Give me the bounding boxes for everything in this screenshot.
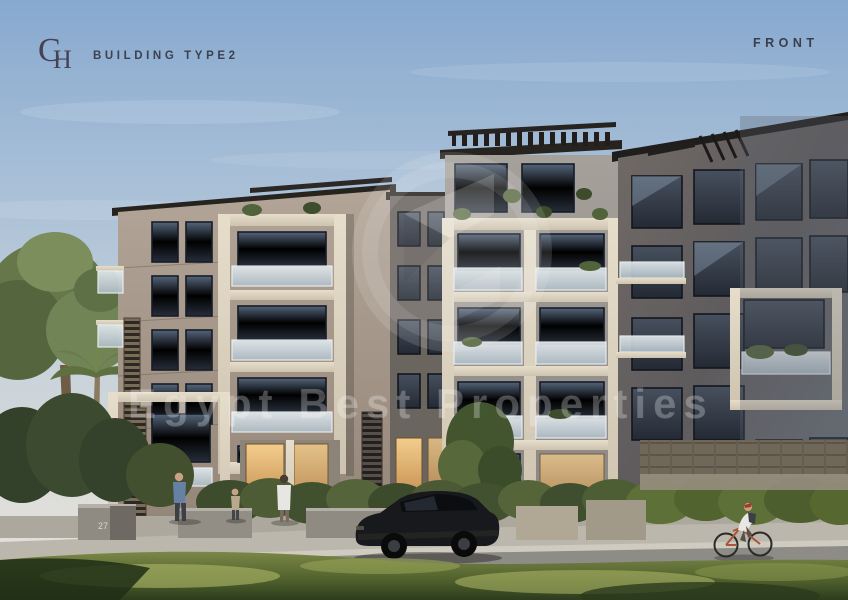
building-render-image: 27 [0, 0, 848, 600]
logo-letter-h: H [53, 47, 72, 73]
planter-number: 27 [98, 521, 108, 531]
watermark-text: Egypt Best Properties [128, 380, 714, 428]
watermark-logo [352, 152, 552, 352]
ch-monogram-logo: C H [38, 34, 78, 78]
view-label-front: FRONT [753, 36, 819, 50]
architectural-render-scene: 27 [0, 0, 848, 600]
building-type-title: BUILDING TYPE2 [93, 50, 239, 62]
